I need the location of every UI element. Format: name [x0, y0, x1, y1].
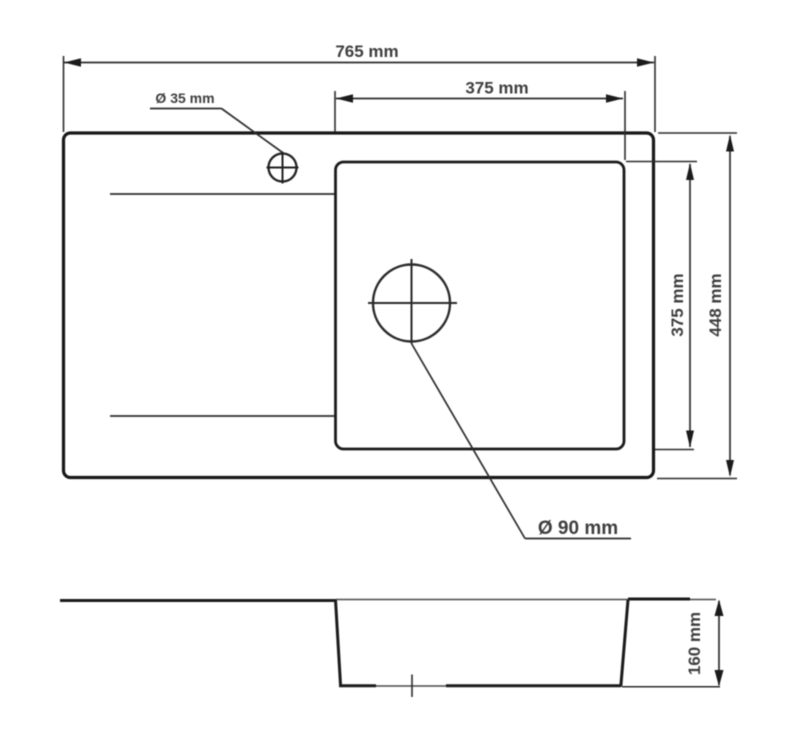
svg-text:Ø 90 mm: Ø 90 mm: [538, 518, 618, 539]
svg-text:Ø 35 mm: Ø 35 mm: [155, 90, 214, 106]
svg-text:375 mm: 375 mm: [668, 273, 687, 336]
svg-text:375 mm: 375 mm: [465, 79, 528, 98]
svg-text:448 mm: 448 mm: [706, 273, 725, 336]
svg-text:160 mm: 160 mm: [685, 612, 704, 675]
svg-text:765 mm: 765 mm: [335, 42, 398, 61]
